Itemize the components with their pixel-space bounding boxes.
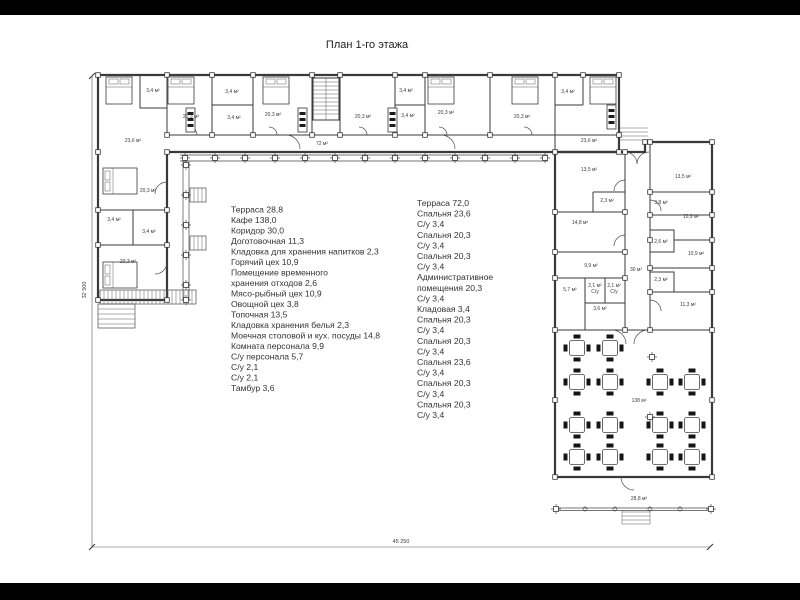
log-joint-marker <box>623 328 628 333</box>
room-area-label: 20,3 м² <box>183 114 200 120</box>
room-area-label: 2,3 м² <box>654 277 668 283</box>
legend-item: Топочная 13,5 <box>231 310 288 320</box>
legend-item: Кладовка хранения белья 2,3 <box>231 320 349 330</box>
log-joint-marker <box>617 73 622 78</box>
room-area-label: 20,3 м² <box>438 110 455 116</box>
log-joint-marker <box>648 328 653 333</box>
legend-item: Кладовая 3,4 <box>417 304 470 314</box>
room-area-label: 3,4 м² <box>225 89 239 95</box>
log-joint-marker <box>553 250 558 255</box>
legend-item: Спальня 20,3 <box>417 251 471 261</box>
room-area-label: 3,4 м² <box>401 113 415 119</box>
legend-item: Доготовочная 11,3 <box>231 236 304 246</box>
log-joint-marker <box>648 140 653 145</box>
bed-icon <box>168 77 194 104</box>
log-joint-marker <box>710 140 715 145</box>
legend-item: Мясо-рыбный цех 10,9 <box>231 289 322 299</box>
legend-item: Спальня 20,3 <box>417 336 471 346</box>
log-joint-marker <box>648 290 653 295</box>
legend-item: Коридор 30,0 <box>231 226 284 236</box>
legend-item: С/у 3,4 <box>417 293 444 303</box>
log-joint-marker <box>648 266 653 271</box>
legend-item: Кафе 138,0 <box>231 215 277 225</box>
log-joint-marker <box>165 243 170 248</box>
legend-item: Терраса 28,8 <box>231 205 283 215</box>
room-area-label: 10,9 м² <box>688 251 705 257</box>
legend-item: С/у 3,4 <box>417 219 444 229</box>
screenshot-root: { "title": "План 1-го этажа", "dimension… <box>0 0 800 600</box>
legend-item: Спальня 20,3 <box>417 315 471 325</box>
room-area-label: 3,8 м² <box>654 200 668 206</box>
legend-item: С/у 3,4 <box>417 262 444 272</box>
log-joint-marker <box>648 213 653 218</box>
legend-item: Терраса 72,0 <box>417 198 469 208</box>
log-joint-marker <box>648 190 653 195</box>
legend-item: С/у 2,1 <box>231 373 258 383</box>
wardrobe-icon <box>388 108 397 132</box>
log-joint-marker <box>96 243 101 248</box>
log-joint-marker <box>710 398 715 403</box>
room-area-label: 72 м² <box>316 141 328 147</box>
log-joint-marker <box>488 133 493 138</box>
room-area-label: 3,4 м² <box>399 88 413 94</box>
log-joint-marker <box>643 140 648 145</box>
room-area-label: 20,3 м² <box>120 259 137 265</box>
room-area-label: 3,4 м² <box>146 88 160 94</box>
log-joint-marker <box>165 298 170 303</box>
log-joint-marker <box>581 73 586 78</box>
legend-item: Горячий цех 10,9 <box>231 257 299 267</box>
log-joint-marker <box>553 398 558 403</box>
bed-icon <box>512 77 538 104</box>
log-joint-marker <box>393 133 398 138</box>
room-area-label: 3,4 м² <box>227 115 241 121</box>
log-joint-marker <box>251 133 256 138</box>
log-joint-marker <box>96 208 101 213</box>
room-area-label: 20,3 м² <box>140 188 157 194</box>
room-area-label: 2,6 м² <box>654 239 668 245</box>
log-joint-marker <box>338 133 343 138</box>
log-joint-marker <box>423 133 428 138</box>
wardrobe-icon <box>186 108 195 132</box>
log-joint-marker <box>553 150 558 155</box>
legend-item: Тамбур 3,6 <box>231 383 275 393</box>
plan-title: План 1-го этажа <box>326 39 409 51</box>
legend-item: Кладовка для хранения напитков 2,3 <box>231 247 379 257</box>
log-joint-marker <box>423 73 428 78</box>
room-area-label: 20,3 м² <box>514 114 531 120</box>
room-area-label: 20,3 м² <box>355 114 372 120</box>
legend-item: С/у 2,1 <box>231 362 258 372</box>
legend-item: С/у персонала 5,7 <box>231 352 304 362</box>
room-area-label: С/у <box>591 289 599 295</box>
room-area-label: С/у <box>610 289 618 295</box>
legend-item: Спальня 23,6 <box>417 209 471 219</box>
legend-item: Помещение временного <box>231 268 328 278</box>
log-joint-marker <box>338 73 343 78</box>
room-area-label: 23,6 м² <box>125 138 142 144</box>
log-joint-marker <box>553 475 558 480</box>
log-joint-marker <box>165 133 170 138</box>
room-area-label: 11,3 м² <box>680 302 696 308</box>
log-joint-marker <box>165 208 170 213</box>
legend-item: Комната персонала 9,9 <box>231 341 324 351</box>
legend-item: С/у 3,4 <box>417 368 444 378</box>
dimension-width-label: 45 250 <box>393 539 410 545</box>
legend-item: Спальня 20,3 <box>417 230 471 240</box>
legend-item: Овощной цех 3,8 <box>231 299 299 309</box>
log-joint-marker <box>710 238 715 243</box>
legend-item: С/у 3,4 <box>417 346 444 356</box>
room-area-label: 10,9 м² <box>683 214 700 220</box>
log-joint-marker <box>623 210 628 215</box>
room-area-label: 2,3 м² <box>600 198 614 204</box>
bed-icon <box>106 77 132 104</box>
legend-item: помещения 20,3 <box>417 283 482 293</box>
log-joint-marker <box>210 133 215 138</box>
legend-item: хранения отходов 2,6 <box>231 278 317 288</box>
log-joint-marker <box>648 238 653 243</box>
log-joint-marker <box>310 73 315 78</box>
room-area-label: 20,3 м² <box>265 112 282 118</box>
room-area-label: 3,4 м² <box>107 217 121 223</box>
log-joint-marker <box>710 328 715 333</box>
room-area-label: 3,6 м² <box>593 306 607 312</box>
legend-item: Спальня 20,3 <box>417 378 471 388</box>
log-joint-marker <box>310 133 315 138</box>
log-joint-marker <box>710 190 715 195</box>
bed-icon <box>103 262 137 288</box>
log-joint-marker <box>710 475 715 480</box>
room-area-label: 9,9 м² <box>584 263 598 269</box>
room-area-label: 5,7 м² <box>563 287 577 293</box>
log-joint-marker <box>251 73 256 78</box>
room-area-label: 138 м² <box>632 398 647 404</box>
bed-icon <box>263 77 289 104</box>
legend-item: С/у 3,4 <box>417 325 444 335</box>
log-joint-marker <box>210 73 215 78</box>
legend-item: Спальня 20,3 <box>417 399 471 409</box>
bed-icon <box>103 168 137 194</box>
log-joint-marker <box>623 250 628 255</box>
dimension-height-label: 32 500 <box>82 282 88 299</box>
letterbox-top <box>0 0 800 15</box>
legend-item: Моечная столовой и кух. посуды 14,8 <box>231 331 380 341</box>
log-joint-marker <box>553 73 558 78</box>
log-joint-marker <box>623 150 628 155</box>
room-area-label: 23,6 м² <box>581 138 598 144</box>
log-joint-marker <box>617 133 622 138</box>
legend-item: Административное <box>417 272 493 282</box>
letterbox-bottom <box>0 583 800 600</box>
legend-item: С/у 3,4 <box>417 240 444 250</box>
log-joint-marker <box>393 73 398 78</box>
log-joint-marker <box>96 73 101 78</box>
log-joint-marker <box>96 298 101 303</box>
log-joint-marker <box>165 150 170 155</box>
log-joint-marker <box>553 276 558 281</box>
log-joint-marker <box>710 266 715 271</box>
log-joint-marker <box>710 290 715 295</box>
room-area-label: 14,8 м² <box>572 220 589 226</box>
log-joint-marker <box>617 150 622 155</box>
room-area-label: 30 м² <box>630 267 642 273</box>
floor-plan-drawing: План 1-го этажа <box>0 0 800 600</box>
room-area-label: 13,5 м² <box>675 174 692 180</box>
room-area-label: 28,8 м² <box>631 496 648 502</box>
log-joint-marker <box>623 276 628 281</box>
wardrobe-icon <box>298 108 307 132</box>
log-joint-marker <box>710 213 715 218</box>
legend-item: С/у 3,4 <box>417 410 444 420</box>
legend-item: Спальня 23,6 <box>417 357 471 367</box>
room-area-label: 13,5 м² <box>581 167 598 173</box>
log-joint-marker <box>553 328 558 333</box>
room-area-label: 3,4 м² <box>142 229 156 235</box>
bed-icon <box>428 77 454 104</box>
legend-item: С/у 3,4 <box>417 389 444 399</box>
log-joint-marker <box>96 150 101 155</box>
wardrobe-icon <box>607 105 616 129</box>
bed-icon <box>590 77 616 104</box>
room-area-label: 3,4 м² <box>561 89 575 95</box>
log-joint-marker <box>553 210 558 215</box>
log-joint-marker <box>488 73 493 78</box>
